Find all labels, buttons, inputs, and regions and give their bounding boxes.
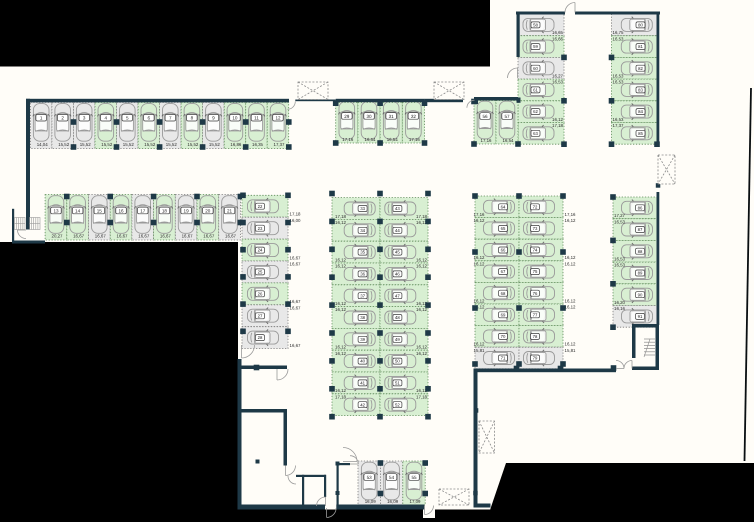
svg-text:80: 80 [638,23,643,28]
svg-text:78: 78 [533,334,538,339]
svg-text:16,12: 16,12 [335,307,347,312]
svg-text:76: 76 [533,291,538,296]
svg-text:74: 74 [533,248,538,253]
svg-text:57: 57 [504,114,510,119]
svg-text:14: 14 [75,208,81,213]
svg-text:16,67: 16,67 [290,255,302,260]
svg-text:11: 11 [254,116,259,121]
svg-text:16,12: 16,12 [474,218,486,223]
svg-text:81: 81 [638,44,643,49]
svg-text:50: 50 [395,359,400,364]
svg-text:16,12: 16,12 [565,342,577,347]
svg-text:51: 51 [395,381,400,386]
svg-text:85: 85 [638,131,643,136]
svg-text:29: 29 [344,114,350,119]
svg-text:34: 34 [360,228,365,233]
svg-text:16,12: 16,12 [335,345,347,350]
svg-text:16,12: 16,12 [335,351,347,356]
svg-text:32: 32 [411,114,417,119]
svg-text:16,12: 16,12 [335,301,347,306]
svg-text:8: 8 [191,116,194,121]
svg-text:16,86: 16,86 [230,142,242,147]
svg-text:16,00: 16,00 [290,218,302,223]
svg-text:16,53: 16,53 [614,257,626,262]
svg-text:16,35: 16,35 [252,142,264,147]
svg-text:35: 35 [360,250,365,255]
svg-text:16,53: 16,53 [552,80,564,85]
svg-text:16,54: 16,54 [387,137,399,142]
svg-text:39: 39 [360,337,365,342]
svg-text:66: 66 [501,248,506,253]
svg-text:16,67: 16,67 [290,305,302,310]
svg-text:10: 10 [232,116,238,121]
svg-text:1: 1 [40,116,43,121]
svg-text:60: 60 [533,66,538,71]
svg-text:90: 90 [638,292,643,297]
svg-text:15,52: 15,52 [101,142,113,147]
svg-text:16,65: 16,65 [552,30,564,35]
svg-text:16,12: 16,12 [565,305,577,310]
svg-text:79: 79 [533,356,538,361]
svg-text:16: 16 [118,208,124,213]
svg-text:91: 91 [638,314,643,319]
svg-text:83: 83 [638,88,643,93]
svg-text:17,18: 17,18 [290,212,302,217]
svg-text:27: 27 [258,313,263,318]
svg-text:17: 17 [140,208,146,213]
svg-text:88: 88 [638,249,643,254]
svg-text:17,16: 17,16 [409,137,421,142]
svg-text:16,12: 16,12 [552,117,564,122]
svg-text:16,67: 16,67 [117,233,129,238]
svg-text:17,09: 17,09 [410,499,422,504]
svg-text:16,53: 16,53 [614,263,626,268]
svg-text:53: 53 [367,475,373,480]
svg-text:56: 56 [482,114,488,119]
svg-text:5: 5 [126,116,129,121]
svg-text:75: 75 [533,269,538,274]
svg-text:41: 41 [360,381,365,386]
svg-text:16,12: 16,12 [335,257,347,262]
svg-text:43: 43 [395,206,400,211]
svg-text:86: 86 [638,205,643,210]
svg-text:17,16: 17,16 [474,212,486,217]
svg-text:67: 67 [501,269,506,274]
svg-text:9: 9 [212,116,215,121]
svg-text:16,09: 16,09 [365,499,377,504]
svg-text:59: 59 [533,44,538,49]
svg-text:63: 63 [533,131,538,136]
svg-text:16,67: 16,67 [73,233,85,238]
svg-text:77: 77 [533,312,538,317]
svg-text:20,27: 20,27 [52,233,64,238]
svg-text:16,12: 16,12 [416,264,428,269]
svg-text:71: 71 [501,356,506,361]
svg-text:16,16: 16,16 [614,306,626,311]
svg-text:16,53: 16,53 [613,117,625,122]
svg-text:17,27: 17,27 [614,213,626,218]
svg-text:16,67: 16,67 [95,233,107,238]
svg-text:16,53: 16,53 [614,219,626,224]
svg-text:17,18: 17,18 [552,123,564,128]
svg-text:3: 3 [83,116,86,121]
svg-text:16,67: 16,67 [290,343,302,348]
svg-text:16,54: 16,54 [503,138,515,143]
svg-text:15,52: 15,52 [166,142,178,147]
svg-text:16,12: 16,12 [335,388,347,393]
svg-text:62: 62 [533,109,538,114]
svg-text:16,12: 16,12 [565,218,577,223]
svg-text:15,52: 15,52 [187,142,199,147]
svg-text:82: 82 [638,66,643,71]
svg-text:7: 7 [169,116,172,121]
svg-text:22: 22 [258,204,263,209]
svg-text:47: 47 [395,293,400,298]
svg-text:18: 18 [162,208,168,213]
svg-text:17,37: 17,37 [613,123,625,128]
svg-text:44: 44 [395,228,400,233]
svg-text:31: 31 [389,114,395,119]
svg-text:6: 6 [148,116,151,121]
svg-text:16,12: 16,12 [335,220,347,225]
svg-text:17,16: 17,16 [565,212,577,217]
svg-text:49: 49 [395,337,400,342]
svg-text:16,12: 16,12 [335,264,347,269]
svg-text:13: 13 [53,208,59,213]
svg-text:16,12: 16,12 [416,345,428,350]
svg-text:16,53: 16,53 [613,36,625,41]
svg-text:16,53: 16,53 [613,80,625,85]
svg-text:15,52: 15,52 [80,142,92,147]
svg-text:2: 2 [61,116,64,121]
svg-text:12: 12 [275,116,281,121]
svg-text:16,54: 16,54 [365,137,377,142]
svg-text:69: 69 [501,312,506,317]
svg-text:15,52: 15,52 [58,142,70,147]
svg-text:21: 21 [227,208,233,213]
svg-text:16,67: 16,67 [225,233,237,238]
svg-text:15,81: 15,81 [474,348,486,353]
svg-text:33: 33 [360,206,365,211]
svg-text:16,12: 16,12 [565,298,577,303]
svg-text:17,18: 17,18 [416,394,428,399]
svg-text:40: 40 [360,359,365,364]
svg-text:42: 42 [360,402,365,407]
svg-text:52: 52 [395,402,400,407]
svg-text:23: 23 [258,226,263,231]
svg-text:15,52: 15,52 [123,142,135,147]
svg-text:30: 30 [366,114,372,119]
svg-text:4: 4 [105,116,108,121]
svg-text:65: 65 [501,226,506,231]
svg-text:16,67: 16,67 [160,233,172,238]
svg-text:58: 58 [533,23,538,28]
svg-text:61: 61 [533,88,538,93]
svg-text:37: 37 [360,293,365,298]
svg-text:26: 26 [258,291,263,296]
svg-text:16,12: 16,12 [416,351,428,356]
svg-text:16,12: 16,12 [416,257,428,262]
svg-text:16,09: 16,09 [387,499,399,504]
svg-text:46: 46 [395,272,400,277]
svg-text:68: 68 [501,291,506,296]
svg-text:16,67: 16,67 [290,299,302,304]
svg-text:17,16: 17,16 [481,138,493,143]
svg-text:19: 19 [184,208,190,213]
svg-text:16,66: 16,66 [552,36,564,41]
svg-text:16,12: 16,12 [416,307,428,312]
svg-text:36: 36 [360,272,365,277]
svg-text:84: 84 [638,109,643,114]
svg-text:16,12: 16,12 [565,255,577,260]
svg-text:87: 87 [638,227,643,232]
svg-text:15,52: 15,52 [209,142,221,147]
svg-text:38: 38 [360,315,365,320]
svg-text:16,67: 16,67 [182,233,194,238]
svg-text:64: 64 [501,204,506,209]
svg-text:45: 45 [395,250,400,255]
svg-text:17,18: 17,18 [416,214,428,219]
svg-text:16,53: 16,53 [613,74,625,79]
svg-text:89: 89 [638,271,643,276]
svg-text:17,18: 17,18 [335,394,347,399]
svg-text:20: 20 [205,208,211,213]
svg-text:16,12: 16,12 [474,342,486,347]
svg-text:15,81: 15,81 [565,348,577,353]
svg-text:16,12: 16,12 [565,261,577,266]
svg-text:16,12: 16,12 [474,298,486,303]
svg-text:24: 24 [258,248,263,253]
svg-text:17,16: 17,16 [342,137,354,142]
svg-text:17,18: 17,18 [335,214,347,219]
svg-text:16,67: 16,67 [290,262,302,267]
svg-text:16,12: 16,12 [474,255,486,260]
svg-text:16,27: 16,27 [552,74,564,79]
svg-text:55: 55 [411,475,417,480]
svg-text:73: 73 [533,226,538,231]
svg-text:16,20: 16,20 [614,300,626,305]
svg-text:72: 72 [533,204,538,209]
svg-text:16,12: 16,12 [474,261,486,266]
svg-text:14,04: 14,04 [37,142,49,147]
svg-text:15,52: 15,52 [144,142,156,147]
svg-text:25: 25 [258,270,263,275]
svg-text:16,67: 16,67 [203,233,215,238]
svg-text:70: 70 [501,334,506,339]
svg-text:15: 15 [97,208,103,213]
svg-text:28: 28 [258,335,263,340]
svg-text:54: 54 [389,475,395,480]
svg-text:16,75: 16,75 [613,30,625,35]
svg-text:17,37: 17,37 [274,142,286,147]
svg-text:16,67: 16,67 [138,233,150,238]
svg-text:48: 48 [395,315,400,320]
